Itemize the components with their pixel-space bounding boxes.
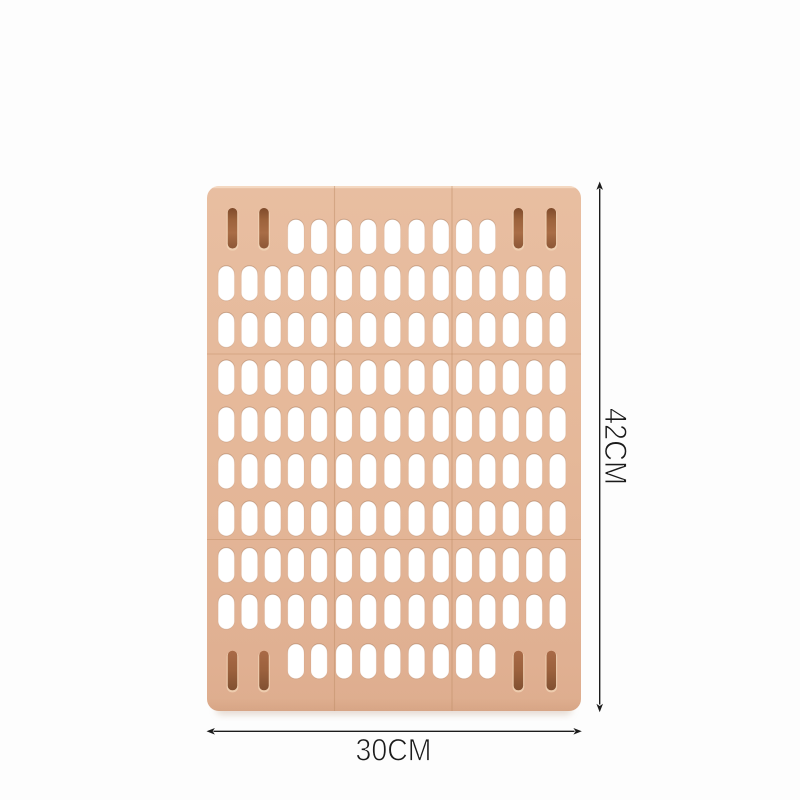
svg-text:30CM: 30CM [356,732,432,768]
svg-text:42CM: 42CM [598,408,634,485]
